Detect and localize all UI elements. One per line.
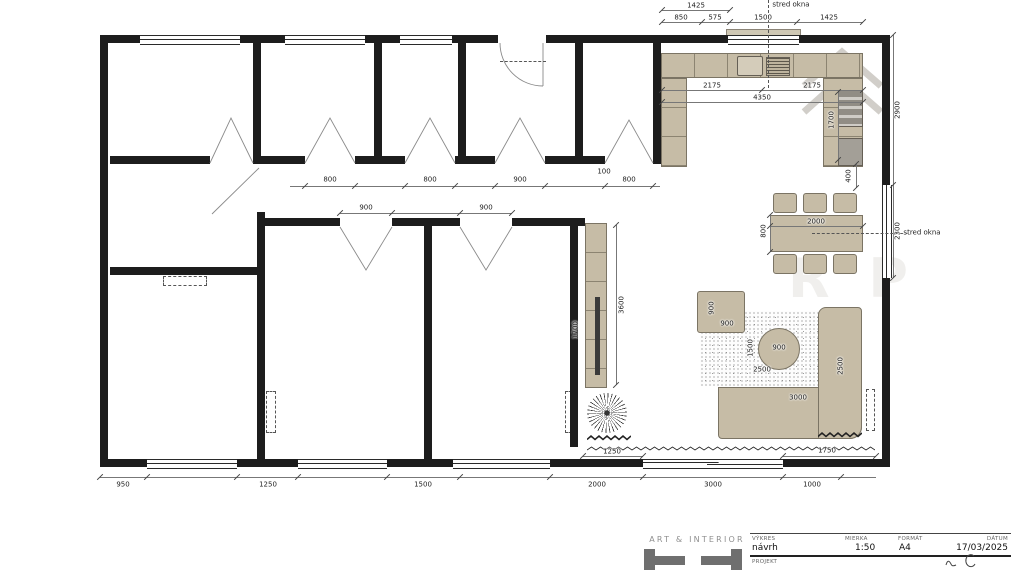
dining-chair (773, 254, 797, 274)
dim-line (770, 215, 771, 252)
radiator (866, 389, 875, 431)
dim-label: 1250 (603, 449, 621, 456)
dim-label: 3000 (789, 395, 807, 402)
sliding-door (643, 459, 783, 469)
field-value-format: A4 (899, 543, 911, 553)
annotation-label: stred okna (903, 230, 940, 237)
curtain-symbol-long (587, 438, 875, 445)
dining-chair (773, 193, 797, 213)
tv (595, 297, 600, 375)
kitchen-hob (766, 57, 790, 76)
dining-chair (803, 193, 827, 213)
dim-label: 1425 (820, 15, 838, 22)
wall-bathroom-bottom (110, 267, 265, 275)
dim-label: 900 (772, 345, 785, 352)
signature-icon (938, 552, 1003, 569)
dim-label: 2500 (753, 367, 771, 374)
field-label-vykres: VÝKRES (752, 536, 775, 542)
dim-label: 2175 (803, 83, 821, 90)
wall-partition (458, 43, 466, 164)
annotation-label: stred okna (772, 2, 809, 9)
dim-line (838, 92, 839, 160)
dim-label: 800 (423, 177, 436, 184)
field-label-datum: DÁTUM (940, 536, 1008, 542)
dim-label: 2000 (807, 219, 825, 226)
dim-label: 950 (116, 482, 129, 489)
wall-bathroom-right (257, 212, 265, 275)
curtain-symbol (587, 429, 631, 438)
dim-tick (853, 185, 859, 191)
curtain-symbol (818, 426, 862, 435)
dim-tick (509, 210, 515, 216)
window (147, 459, 237, 469)
dining-chair (833, 254, 857, 274)
window (298, 459, 387, 469)
wall-corridor-top (110, 156, 210, 164)
field-value-mierka: 1:50 (855, 543, 875, 553)
dim-label: 575 (708, 15, 721, 22)
project-label: PROJEKT (752, 559, 777, 565)
window (140, 35, 240, 45)
window (882, 185, 892, 278)
dim-label: 1700 (573, 321, 580, 339)
dim-label: 800 (323, 177, 336, 184)
plant-icon (587, 393, 627, 433)
dim-label: 1250 (259, 482, 277, 489)
dim-label: 1700 (829, 111, 836, 129)
dim-label: 900 (359, 205, 372, 212)
wall-partition (424, 226, 432, 459)
dim-label: 1000 (803, 482, 821, 489)
dim-label: 3000 (704, 482, 722, 489)
dim-line (583, 456, 643, 457)
wall-partition (257, 275, 265, 459)
kitchen-counter-left (661, 78, 687, 167)
wall-partition (374, 43, 382, 164)
wall-corridor-bottom (392, 218, 460, 226)
window (453, 459, 550, 469)
dining-chair (803, 254, 827, 274)
dim-line (662, 22, 863, 23)
brand-name: ART & INTERIOR (648, 535, 746, 544)
dim-label: 800 (622, 177, 635, 184)
brand-logo-icon (640, 549, 746, 570)
dim-label: 1750 (818, 448, 836, 455)
window (400, 35, 452, 45)
title-table-topline (750, 533, 1011, 534)
dim-label: 2175 (703, 83, 721, 90)
kitchen-window (728, 35, 799, 45)
dim-label: 900 (709, 301, 716, 314)
field-label-mierka: MIERKA (845, 536, 868, 542)
dim-line (783, 456, 876, 457)
radiator (266, 391, 276, 433)
wall-partition (253, 43, 261, 164)
kitchen-sink (737, 56, 763, 76)
wall-outer-left (100, 35, 108, 467)
dim-label: 2300 (895, 222, 902, 240)
dim-label: 1500 (754, 15, 772, 22)
dim-label: 800 (761, 224, 768, 237)
dim-line (662, 10, 730, 11)
dim-label: 2900 (895, 101, 902, 119)
dining-chair (833, 193, 857, 213)
entry-door-opening (498, 35, 546, 43)
dim-label: 850 (674, 15, 687, 22)
field-value-vykres: návrh (752, 543, 778, 553)
dim-label: 4350 (753, 95, 771, 102)
plan-canvas: R P (0, 0, 1011, 570)
wall-corridor-bottom (261, 218, 340, 226)
dim-tick (767, 249, 773, 255)
dim-label: 900 (479, 205, 492, 212)
field-label-format: FORMÁT (898, 536, 923, 542)
dim-label: 1500 (414, 482, 432, 489)
entry-centerline (500, 61, 546, 62)
wall-corridor-bottom (512, 218, 585, 226)
dim-line (662, 102, 863, 103)
wall-partition (575, 43, 583, 164)
dim-label: 100 (597, 169, 610, 176)
kitchen-oven (838, 90, 863, 127)
dim-line (856, 164, 857, 188)
floor-plan-page: R P (0, 0, 1011, 570)
dim-label: 1425 (687, 3, 705, 10)
radiator (163, 276, 207, 286)
dim-label: 900 (513, 177, 526, 184)
dim-tick (727, 7, 733, 13)
dim-line (770, 226, 863, 227)
dim-label: 2000 (588, 482, 606, 489)
kitchen-fridge (838, 138, 863, 166)
dim-line (100, 477, 876, 478)
dim-label: 400 (846, 169, 853, 182)
dim-line (340, 213, 512, 214)
dim-label: 900 (720, 321, 733, 328)
window (285, 35, 365, 45)
dim-label: 3600 (619, 296, 626, 314)
dim-label: 1500 (748, 339, 755, 357)
dim-tick (860, 19, 866, 25)
dim-tick (613, 382, 619, 388)
dim-label: 2500 (838, 357, 845, 375)
